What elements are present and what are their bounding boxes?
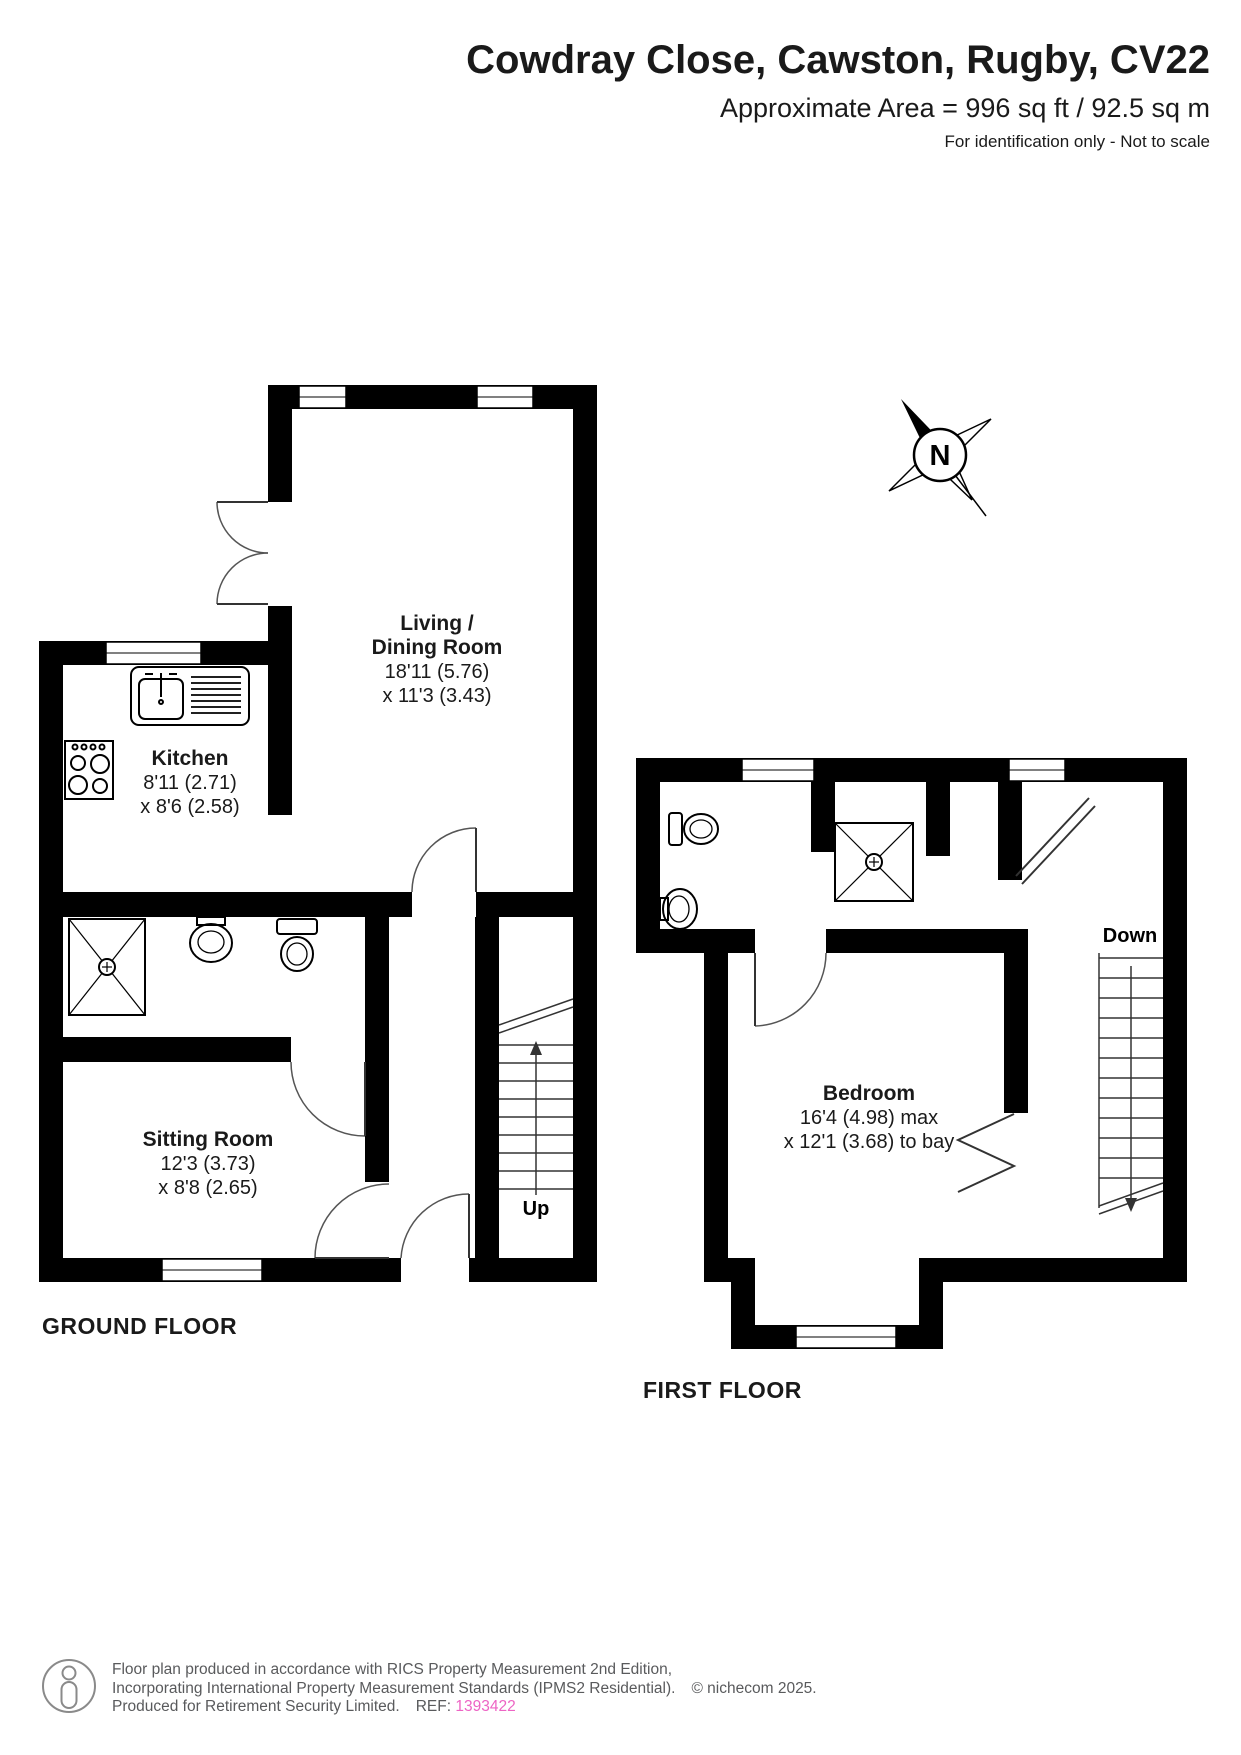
room-label-bedroom: Bedroom 16'4 (4.98) max x 12'1 (3.68) to…: [784, 1082, 955, 1154]
door-arc: [755, 953, 826, 1026]
room-dimensions: x 8'8 (2.65): [143, 1176, 274, 1200]
compass-north-label: N: [930, 440, 951, 472]
basin-icon: [660, 889, 697, 929]
toilet-icon: [669, 813, 718, 845]
sink-icon: [131, 667, 249, 725]
cupboard-door: [1016, 798, 1089, 876]
stairs-up-icon: [499, 999, 573, 1195]
ground-floor-label: GROUND FLOOR: [42, 1313, 237, 1340]
ref-value: 1393422: [455, 1698, 515, 1715]
room-name: Kitchen: [140, 747, 239, 771]
door-arc: [412, 828, 476, 892]
compass-rose: N: [855, 370, 1025, 540]
copyright: © nichecom 2025.: [691, 1680, 816, 1697]
first-floor-plan: Down: [636, 758, 1187, 1350]
floorplan-page: { "header": { "title": "Cowdray Close, C…: [0, 0, 1241, 1755]
first-floor-label: FIRST FLOOR: [643, 1377, 802, 1404]
hob-icon: [65, 741, 113, 799]
footer-line-1: Floor plan produced in accordance with R…: [112, 1661, 817, 1680]
approximate-area: Approximate Area = 996 sq ft / 92.5 sq m: [0, 93, 1210, 124]
shower-icon: [835, 823, 913, 901]
room-name: Dining Room: [372, 636, 503, 660]
produced-for: Produced for Retirement Security Limited…: [112, 1698, 400, 1715]
room-name: Living /: [372, 612, 503, 636]
room-dimensions: x 11'3 (3.43): [372, 684, 503, 708]
page-title: Cowdray Close, Cawston, Rugby, CV22: [0, 38, 1210, 83]
ground-walls: [39, 385, 597, 1282]
room-dimensions: 18'11 (5.76): [372, 660, 503, 684]
bifold-door: [958, 1114, 1014, 1192]
toilet-icon: [277, 919, 317, 971]
room-label-sitting: Sitting Room 12'3 (3.73) x 8'8 (2.65): [143, 1128, 274, 1200]
footer-line-3: Produced for Retirement Security Limited…: [112, 1698, 817, 1717]
first-doors: [755, 953, 826, 1026]
person-icon: [40, 1655, 98, 1717]
shower-icon: [69, 919, 145, 1015]
ref-label: REF:: [416, 1698, 451, 1715]
stairs-down-label: Down: [1103, 925, 1157, 947]
door-arc: [315, 1184, 389, 1258]
ground-floor-plan: Up: [39, 385, 600, 1288]
room-name: Bedroom: [784, 1082, 955, 1106]
room-dimensions: 8'11 (2.71): [140, 771, 239, 795]
header: Cowdray Close, Cawston, Rugby, CV22 Appr…: [0, 38, 1210, 152]
room-label-kitchen: Kitchen 8'11 (2.71) x 8'6 (2.58): [140, 747, 239, 819]
french-door-arc: [217, 553, 268, 604]
room-name: Sitting Room: [143, 1128, 274, 1152]
cupboard-door: [1022, 806, 1095, 884]
room-dimensions: 12'3 (3.73): [143, 1152, 274, 1176]
door-arc: [401, 1194, 469, 1258]
door-arc: [291, 1062, 365, 1136]
french-door-arc: [217, 502, 268, 553]
first-walls: [636, 758, 1187, 1349]
scale-disclaimer: For identification only - Not to scale: [0, 132, 1210, 152]
basin-icon: [190, 917, 232, 962]
room-label-living-dining: Living / Dining Room 18'11 (5.76) x 11'3…: [372, 612, 503, 708]
footer: Floor plan produced in accordance with R…: [40, 1655, 817, 1717]
footer-text: Floor plan produced in accordance with R…: [112, 1655, 817, 1717]
stairs-up-label: Up: [523, 1198, 550, 1220]
room-dimensions: 16'4 (4.98) max: [784, 1106, 955, 1130]
room-dimensions: x 12'1 (3.68) to bay: [784, 1130, 955, 1154]
footer-line-2: Incorporating International Property Mea…: [112, 1680, 817, 1699]
footer-standards: Incorporating International Property Mea…: [112, 1680, 675, 1697]
room-dimensions: x 8'6 (2.58): [140, 795, 239, 819]
stairs-down-icon: [1099, 953, 1163, 1214]
